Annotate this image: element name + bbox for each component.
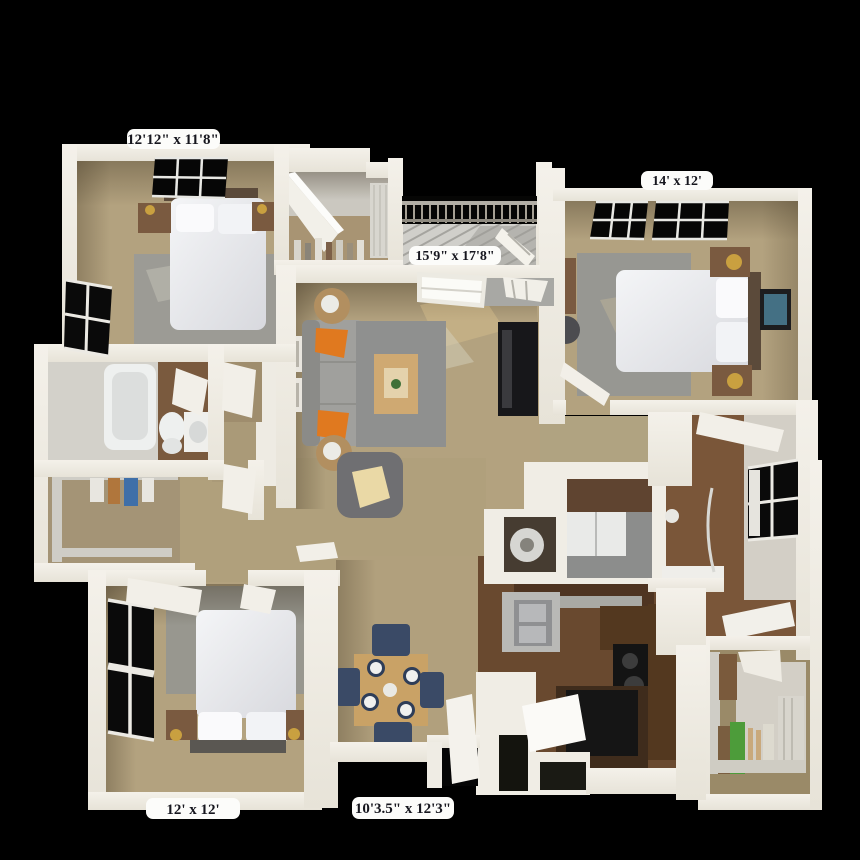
- svg-text:12' x 12': 12' x 12': [166, 802, 219, 818]
- svg-text:14' x 12': 14' x 12': [652, 174, 702, 189]
- svg-text:15'9" x 17'8": 15'9" x 17'8": [415, 249, 494, 264]
- svg-text:12'12" x 11'8": 12'12" x 11'8": [127, 132, 219, 148]
- svg-text:10'3.5" x 12'3": 10'3.5" x 12'3": [355, 801, 451, 817]
